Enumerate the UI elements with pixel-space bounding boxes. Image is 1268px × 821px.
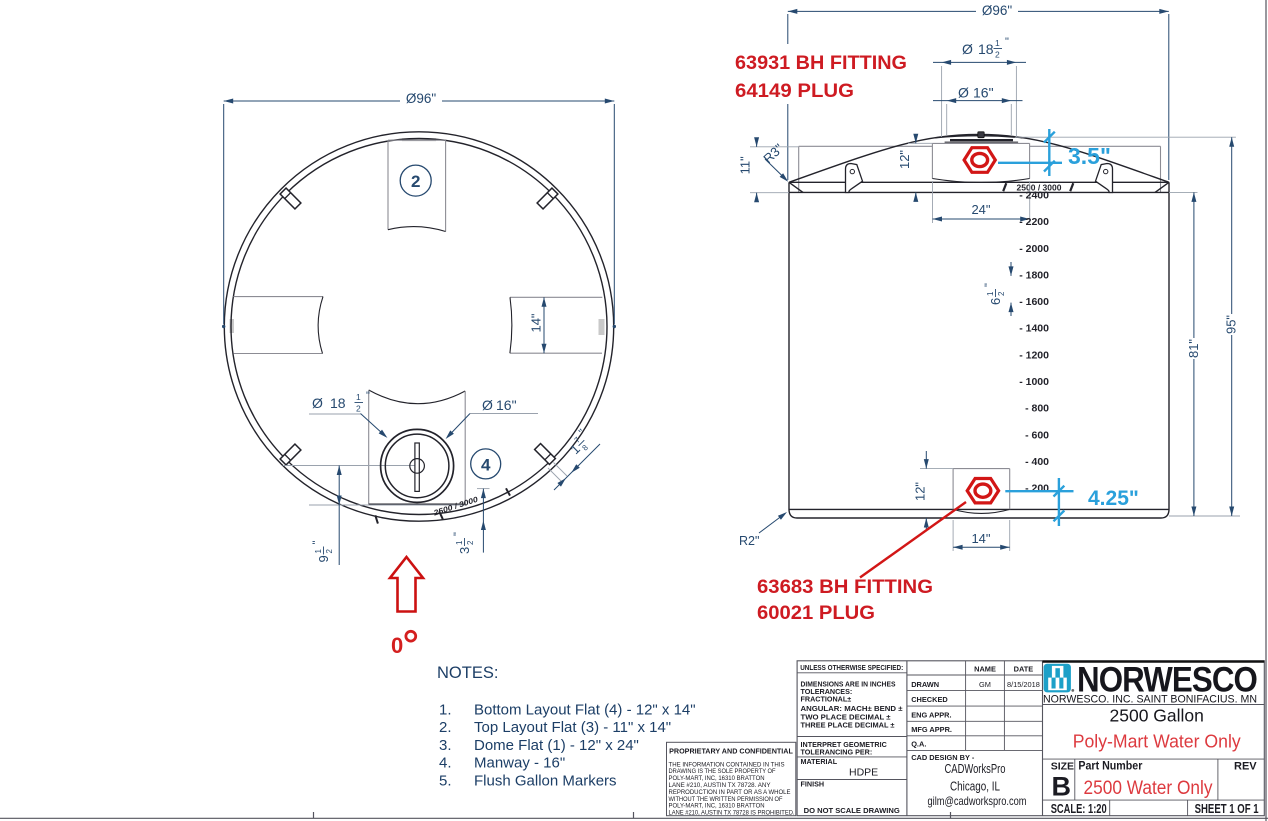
svg-text:NORWESCO. INC. SAINT BONIFACI: NORWESCO. INC. SAINT BONIFACIUS. MN (1043, 694, 1257, 706)
svg-text:": " (311, 541, 323, 545)
svg-text:R2": R2" (739, 534, 759, 548)
svg-text:16": 16" (496, 397, 517, 413)
svg-text:18: 18 (978, 41, 994, 57)
svg-text:Q.A.: Q.A. (911, 740, 926, 749)
svg-text:- 2200: - 2200 (1019, 216, 1049, 228)
svg-text:Flush Gallon Markers: Flush Gallon Markers (474, 772, 617, 789)
svg-text:MATERIAL: MATERIAL (801, 757, 838, 766)
svg-text:1: 1 (455, 540, 464, 545)
svg-text:B: B (1052, 771, 1072, 801)
svg-text:CAD DESIGN BY -: CAD DESIGN BY - (911, 753, 975, 762)
svg-text:CADWorksPro: CADWorksPro (945, 762, 1006, 776)
svg-text:5.: 5. (439, 772, 452, 789)
svg-text:2: 2 (411, 172, 420, 191)
svg-text:Part Number: Part Number (1078, 758, 1142, 772)
svg-text:- 200: - 200 (1025, 483, 1049, 495)
svg-text:": " (983, 283, 995, 287)
svg-text:gilm@cadworkspro.com: gilm@cadworkspro.com (928, 794, 1027, 808)
svg-text:Dome Flat (1) - 12" x 24": Dome Flat (1) - 12" x 24" (474, 737, 639, 754)
svg-text:- 600: - 600 (1025, 429, 1049, 441)
svg-text:Bottom Layout Flat (4) - 12" x: Bottom Layout Flat (4) - 12" x 14" (474, 702, 696, 719)
svg-text:24": 24" (971, 202, 990, 217)
svg-text:9: 9 (316, 555, 331, 562)
svg-text:- 1800: - 1800 (1019, 269, 1049, 281)
svg-text:3.5": 3.5" (1068, 143, 1111, 169)
svg-text:THREE PLACE DECIMAL ±: THREE PLACE DECIMAL ± (801, 720, 895, 729)
svg-text:LANE #210, AUSTIN TX 78728 IS: LANE #210, AUSTIN TX 78728 IS PROHIBITED… (669, 810, 795, 817)
svg-text:- 800: - 800 (1025, 403, 1049, 415)
svg-text:DO NOT SCALE DRAWING: DO NOT SCALE DRAWING (804, 806, 900, 815)
svg-text:2: 2 (997, 291, 1006, 296)
svg-text:FINISH: FINISH (801, 780, 825, 789)
svg-text:TOLERANCING PER:: TOLERANCING PER: (801, 747, 873, 756)
svg-text:- 400: - 400 (1025, 456, 1049, 468)
svg-text:1.: 1. (439, 702, 452, 719)
svg-text:3: 3 (457, 547, 472, 554)
svg-text:FRACTIONAL±: FRACTIONAL± (801, 694, 852, 703)
svg-text:18: 18 (330, 395, 346, 411)
svg-text:": " (1005, 36, 1009, 48)
svg-text:64149 PLUG: 64149 PLUG (735, 81, 854, 102)
svg-text:63683 BH FITTING: 63683 BH FITTING (757, 577, 933, 598)
svg-text:2: 2 (466, 540, 475, 545)
svg-text:0: 0 (391, 633, 403, 658)
svg-text:Poly-Mart Water Only: Poly-Mart Water Only (1073, 731, 1242, 752)
svg-text:Chicago, IL: Chicago, IL (950, 780, 1000, 794)
svg-text:14": 14" (529, 313, 544, 332)
svg-text:- 1200: - 1200 (1019, 349, 1049, 361)
svg-text:UNLESS OTHERWISE SPECIFIED:: UNLESS OTHERWISE SPECIFIED: (800, 663, 903, 672)
svg-text:4.25": 4.25" (1088, 487, 1139, 510)
svg-text:1: 1 (356, 392, 361, 402)
svg-text:SHEET 1 OF 1: SHEET 1 OF 1 (1195, 802, 1259, 816)
svg-text:8/15/2018: 8/15/2018 (1007, 680, 1040, 689)
svg-text:4.: 4. (439, 755, 452, 772)
svg-text:2: 2 (356, 404, 361, 414)
svg-text:14": 14" (971, 531, 990, 546)
svg-text:Top Layout Flat (3) - 11" x 14: Top Layout Flat (3) - 11" x 14" (474, 719, 671, 736)
svg-text:- 1400: - 1400 (1019, 323, 1049, 335)
svg-text:NAME: NAME (974, 664, 996, 673)
svg-text:GM: GM (979, 680, 991, 689)
svg-text:2.: 2. (439, 719, 452, 736)
svg-text:- 2400: - 2400 (1019, 190, 1049, 202)
svg-text:63931 BH FITTING: 63931 BH FITTING (735, 53, 907, 74)
svg-text:6: 6 (988, 298, 1003, 305)
svg-text:DRAWN: DRAWN (911, 680, 939, 689)
svg-text:Ø96": Ø96" (406, 91, 437, 106)
svg-text:81": 81" (1186, 339, 1201, 358)
svg-text:": " (452, 532, 464, 536)
svg-text:Ø: Ø (312, 395, 323, 411)
svg-text:DATE: DATE (1014, 664, 1034, 673)
svg-text:1: 1 (314, 549, 323, 554)
svg-text:Manway - 16": Manway - 16" (474, 755, 565, 772)
svg-text:3.: 3. (439, 737, 452, 754)
svg-text:SCALE: 1:20: SCALE: 1:20 (1051, 802, 1107, 816)
svg-text:1: 1 (995, 38, 1000, 48)
svg-text:ENG APPR.: ENG APPR. (911, 710, 951, 719)
svg-text:1: 1 (986, 291, 995, 296)
svg-text:": " (366, 390, 370, 402)
svg-text:12": 12" (897, 150, 912, 169)
svg-text:REV: REV (1234, 760, 1257, 772)
svg-text:HDPE: HDPE (849, 767, 878, 779)
svg-text:2500 Water Only: 2500 Water Only (1084, 778, 1213, 799)
svg-text:- 1000: - 1000 (1019, 376, 1049, 388)
svg-text:- 2000: - 2000 (1019, 243, 1049, 255)
svg-text:NOTES:: NOTES: (437, 664, 498, 682)
svg-text:4: 4 (481, 455, 491, 474)
svg-text:Ø: Ø (962, 41, 973, 57)
svg-text:MFG APPR.: MFG APPR. (911, 725, 952, 734)
svg-text:Ø: Ø (958, 85, 969, 101)
svg-text:60021 PLUG: 60021 PLUG (757, 603, 875, 624)
svg-text:16": 16" (973, 85, 994, 101)
svg-text:Ø: Ø (482, 397, 493, 413)
svg-text:Ø96": Ø96" (982, 3, 1013, 18)
svg-text:2500 Gallon: 2500 Gallon (1110, 705, 1204, 725)
svg-text:2: 2 (995, 50, 1000, 60)
svg-text:12": 12" (913, 482, 928, 501)
svg-text:CHECKED: CHECKED (911, 695, 948, 704)
svg-text:2: 2 (325, 549, 334, 554)
svg-text:PROPRIETARY AND CONFIDENTIAL: PROPRIETARY AND CONFIDENTIAL (669, 747, 793, 756)
svg-text:- 1600: - 1600 (1019, 296, 1049, 308)
svg-text:95": 95" (1224, 315, 1239, 334)
svg-text:11": 11" (738, 156, 753, 174)
